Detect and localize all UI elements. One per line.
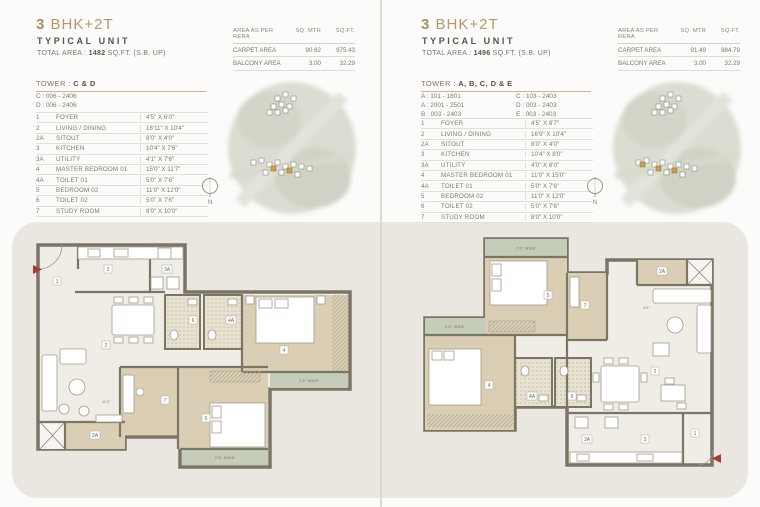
tower-range-line: D : 006 - 2406	[36, 101, 131, 110]
north-compass-icon: N	[200, 176, 220, 206]
unit-type-label: BHK+2T	[436, 16, 499, 33]
tower-range-line: A : 101 - 1801	[421, 92, 516, 101]
table-row: 3AUTILITY4'1" X 7'6"	[36, 155, 208, 165]
total-area-line: TOTAL AREA : 1482 SQ.FT. (S.B. UP)	[37, 50, 166, 57]
rera-table-header: AREA AS PER RERA SQ. MTR SQ.FT.	[618, 28, 740, 44]
balcony-width-label: 2'6" WIDE	[299, 379, 319, 383]
table-row: 6TOILET 025'0" X 7'6"	[421, 202, 593, 212]
room-tag: 6	[571, 394, 574, 400]
tower-names: C & D	[73, 79, 95, 88]
wardrobe-strip	[332, 295, 348, 372]
tower-heading: TOWER : A, B, C, D & E	[421, 79, 591, 92]
room-tag: 6	[192, 318, 195, 324]
total-area-value: 1496	[474, 50, 491, 57]
tower-range-line: C : 006 - 2406	[36, 92, 131, 101]
table-row: 7STUDY ROOM8'0" X 10'0"	[421, 213, 593, 223]
rera-area-table: AREA AS PER RERA SQ. MTR SQ.FT. CARPET A…	[618, 28, 740, 71]
dresser-strip	[210, 371, 260, 382]
unit-subtitle: TYPICAL UNIT	[37, 36, 130, 46]
table-row: CARPET AREA 90.62 975.43	[233, 44, 355, 58]
wardrobe-strip	[427, 414, 513, 427]
table-row: 3AUTILITY4'0" X 8'0"	[421, 161, 593, 171]
room-tag: 3	[644, 437, 647, 443]
tower-range-line: C : 103 - 2403	[516, 92, 611, 101]
site-key-plan	[610, 78, 745, 218]
rera-table-header: AREA AS PER RERA SQ. MTR SQ.FT.	[233, 28, 355, 44]
table-row: 4MASTER BEDROOM 0111'0" X 15'0"	[421, 171, 593, 181]
balcony-width-label: 2'6" WIDE	[215, 456, 235, 460]
table-row: 2LIVING / DINING16'9" X 10'4"	[421, 129, 593, 139]
room-tag: 2	[654, 369, 657, 375]
room-dimension-table: 1FOYER4'5" X 8'7" 2LIVING / DINING16'9" …	[421, 118, 593, 223]
inline-dimension: 11'0"	[102, 399, 111, 404]
room-dimension-table: 1FOYER4'5" X 6'0" 2LIVING / DINING16'11"…	[36, 112, 208, 217]
room-tag: 4A	[228, 318, 235, 324]
table-row: 2ASITOUT8'0" X 4'0"	[421, 140, 593, 150]
total-area-value: 1482	[89, 50, 106, 57]
room-tag: 3	[107, 267, 110, 273]
unit-bhk-count: 3	[36, 16, 45, 33]
room-tag: 4	[488, 383, 491, 389]
room-tag: 4	[283, 348, 286, 354]
room-tag: 5	[547, 293, 550, 299]
unit-title: 3 BHK+2T	[421, 16, 499, 33]
table-row: 3KITCHEN10'4" X 7'6"	[36, 144, 208, 154]
tower-heading: TOWER : C & D	[36, 79, 206, 92]
table-row: BALCONY AREA 3.00 32.29	[233, 57, 355, 71]
room-tag: 5	[205, 416, 208, 422]
table-row: BALCONY AREA 3.00 32.29	[618, 57, 740, 71]
brochure-page: 3 BHK+2T TYPICAL UNIT TOTAL AREA : 1482 …	[0, 0, 760, 507]
table-row: 4ATOILET 015'0" X 7'6"	[36, 175, 208, 185]
table-row: CARPET AREA 91.49 984.79	[618, 44, 740, 58]
table-row: 2ASITOUT8'0" X 4'0"	[36, 134, 208, 144]
room-tag: 2	[105, 343, 108, 349]
table-row: 5BEDROOM 0211'0" X 12'0"	[421, 192, 593, 202]
unit-panel-right: 3 BHK+2T TYPICAL UNIT TOTAL AREA : 1496 …	[385, 0, 760, 507]
room-tag: 3A	[584, 437, 591, 443]
north-label: N	[208, 200, 212, 206]
inline-dimension: 9'0"	[643, 305, 650, 310]
unit-subtitle: TYPICAL UNIT	[422, 36, 515, 46]
site-key-plan	[225, 78, 360, 218]
rera-area-table: AREA AS PER RERA SQ. MTR SQ.FT. CARPET A…	[233, 28, 355, 71]
table-row: 3KITCHEN10'4" X 8'0"	[421, 150, 593, 160]
room-tag: 7	[584, 303, 587, 309]
room-tag: 4A	[529, 394, 536, 400]
tower-unit-ranges: C : 006 - 2406 D : 006 - 2406	[36, 92, 226, 110]
unit-title: 3 BHK+2T	[36, 16, 114, 33]
tower-range-line: A : 2001 - 2501	[421, 101, 516, 110]
table-row: 4MASTER BEDROOM 0115'0" X 11'7"	[36, 165, 208, 175]
balcony-width-label: 2'6" WIDE	[445, 325, 465, 329]
room-tag: 1	[694, 431, 697, 437]
room-tag: 1	[56, 279, 59, 285]
room-tag: 2A	[92, 433, 99, 439]
unit-type-label: BHK+2T	[51, 16, 114, 33]
table-row: 5BEDROOM 0211'0" X 12'0"	[36, 186, 208, 196]
tower-range-line: D : 003 - 2403	[516, 101, 611, 110]
dresser-strip	[489, 321, 535, 332]
balcony-width-label: 2'6" WIDE	[516, 247, 536, 251]
tower-names: A, B, C, D & E	[458, 79, 512, 88]
room-tag: 3A	[164, 267, 171, 273]
unit-panel-left: 3 BHK+2T TYPICAL UNIT TOTAL AREA : 1482 …	[0, 0, 380, 507]
floor-plan-drawing: 1 2 2A 3 3A 4 4A 5 6 7 2'6" WIDE 2'6" WI…	[30, 237, 360, 487]
room-tag: 2A	[659, 269, 666, 275]
table-row: 6TOILET 025'0" X 7'6"	[36, 196, 208, 206]
unit-bhk-count: 3	[421, 16, 430, 33]
north-label: N	[593, 200, 597, 206]
tower-unit-ranges: A : 101 - 1801 A : 2001 - 2501 B : 003 -…	[421, 92, 611, 119]
north-compass-icon: N	[585, 176, 605, 206]
table-row: 1FOYER4'5" X 6'0"	[36, 112, 208, 123]
room-tag: 7	[164, 398, 167, 404]
table-row: 2LIVING / DINING16'11" X 10'4"	[36, 123, 208, 133]
table-row: 1FOYER4'5" X 8'7"	[421, 118, 593, 129]
table-row: 7STUDY ROOM8'0" X 10'0"	[36, 207, 208, 217]
table-row: 4ATOILET 015'0" X 7'6"	[421, 181, 593, 191]
floor-plan-drawing: 1 2 2A 3 3A 4 4A 5 6 7 2'6" WIDE 2'6" WI…	[415, 225, 745, 490]
page-divider	[380, 0, 382, 507]
total-area-line: TOTAL AREA : 1496 SQ.FT. (S.B. UP)	[422, 50, 551, 57]
